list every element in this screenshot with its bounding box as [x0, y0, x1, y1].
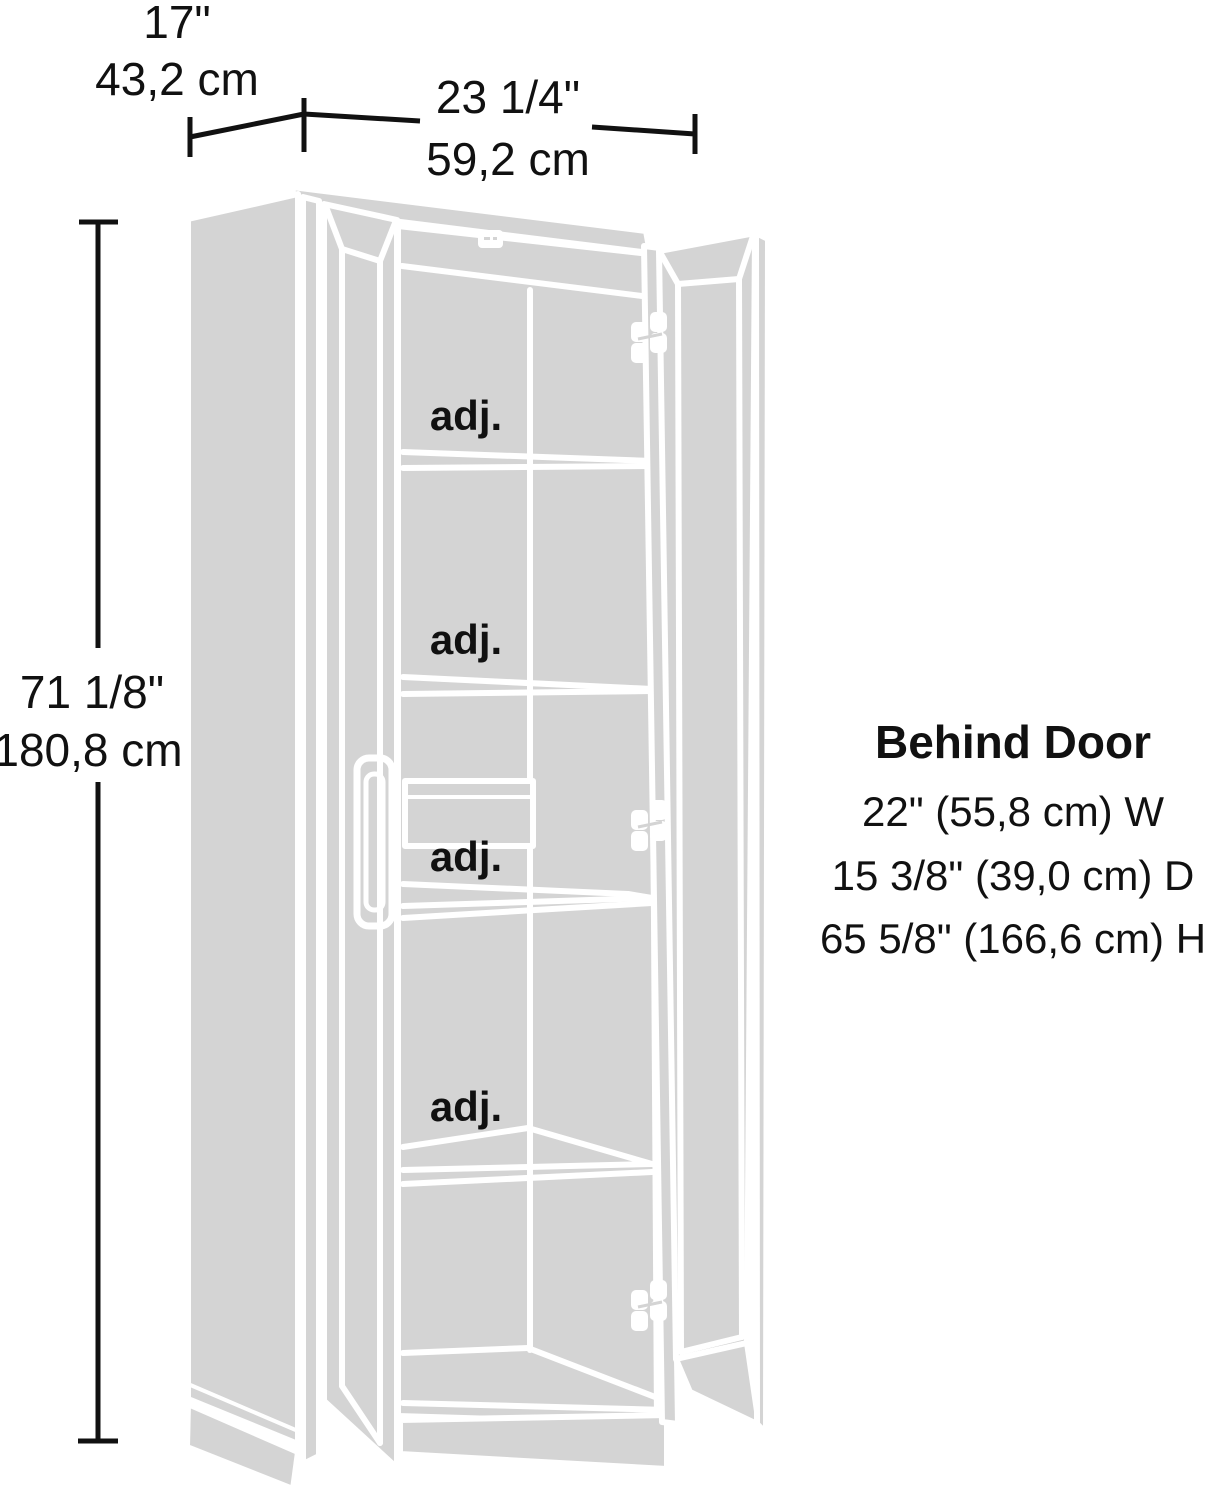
right-door-edge [756, 233, 768, 1433]
right-door-bottom-chamfer [676, 1343, 759, 1425]
behind-door-depth: 15 3/8" (39,0 cm) D [832, 852, 1195, 899]
height-metric-label: 180,8 cm [0, 724, 183, 776]
height-inches-label: 71 1/8" [20, 666, 164, 718]
cabinet-base [400, 1415, 667, 1469]
width-inches-label: 23 1/4" [436, 71, 580, 123]
depth-inches-label: 17" [143, 0, 211, 48]
left-door-outer-face [188, 194, 298, 1444]
shelf-label-2: adj. [430, 616, 502, 663]
shelf-label-4: adj. [430, 1083, 502, 1130]
left-door-edge [303, 197, 319, 1464]
behind-door-title: Behind Door [875, 716, 1151, 768]
door-latch [478, 230, 503, 248]
height-dimension-line [78, 222, 118, 1441]
depth-metric-label: 43,2 cm [95, 53, 259, 105]
behind-door-spec-block: Behind Door 22" (55,8 cm) W 15 3/8" (39,… [820, 716, 1206, 962]
behind-door-height: 65 5/8" (166,6 cm) H [820, 915, 1206, 962]
width-metric-label: 59,2 cm [426, 133, 590, 185]
shelf-label-1: adj. [430, 392, 502, 439]
cabinet-line-art: 17" 43,2 cm 23 1/4" 59,2 cm 71 1/8" 180,… [0, 0, 1214, 1500]
behind-door-width: 22" (55,8 cm) W [862, 788, 1164, 835]
right-door [659, 233, 768, 1433]
left-door [187, 194, 397, 1489]
shelf-label-3: adj. [430, 833, 502, 880]
product-dimension-diagram: 17" 43,2 cm 23 1/4" 59,2 cm 71 1/8" 180,… [0, 0, 1214, 1500]
